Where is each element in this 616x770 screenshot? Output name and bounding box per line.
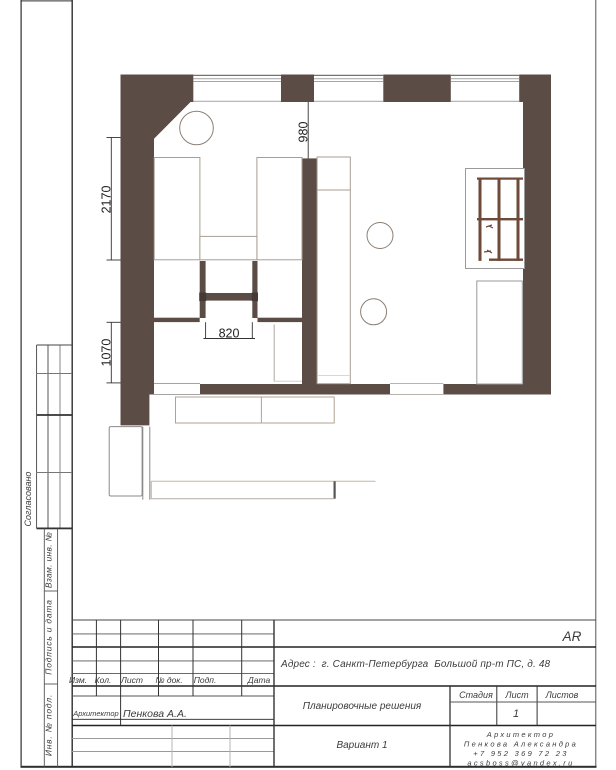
svg-text:Архитектор: Архитектор <box>486 730 555 739</box>
svg-text:Лист: Лист <box>504 690 529 700</box>
svg-text:Дата: Дата <box>247 675 271 685</box>
svg-text:Планировочные решения: Планировочные решения <box>303 701 422 712</box>
svg-text:Подп.: Подп. <box>194 675 217 685</box>
svg-text:Взам. инв. №: Взам. инв. № <box>44 532 54 588</box>
svg-text:Пенкова А.А.: Пенкова А.А. <box>123 708 187 720</box>
svg-text:Подпись и дата: Подпись и дата <box>44 599 54 675</box>
svg-text:acsboss@yandex.ru: acsboss@yandex.ru <box>467 758 574 767</box>
svg-text:Пенкова Александра: Пенкова Александра <box>464 740 578 749</box>
svg-text:Архитектор: Архитектор <box>72 709 118 718</box>
svg-text:Кол.: Кол. <box>95 675 112 685</box>
svg-text:+7 952 369 72 23: +7 952 369 72 23 <box>473 749 568 758</box>
svg-text:Листов: Листов <box>545 690 579 700</box>
svg-text:Адрес : г. Санкт-Петербурга: Адрес : г. Санкт-Петербурга Большой пр-т… <box>280 658 551 670</box>
svg-text:1070: 1070 <box>99 339 113 367</box>
svg-text:Лист: Лист <box>120 675 143 685</box>
svg-text:№ док.: № док. <box>155 675 182 685</box>
svg-text:2170: 2170 <box>99 186 113 214</box>
svg-text:AR: AR <box>562 629 582 644</box>
svg-text:Изм.: Изм. <box>69 675 87 685</box>
svg-text:820: 820 <box>219 326 240 340</box>
svg-text:980: 980 <box>296 122 310 143</box>
svg-text:Вариант 1: Вариант 1 <box>336 740 387 751</box>
svg-text:Инв. № подл.: Инв. № подл. <box>44 694 54 756</box>
svg-text:1: 1 <box>513 708 519 720</box>
svg-text:Стадия: Стадия <box>459 690 493 700</box>
svg-text:Согласовано: Согласовано <box>23 472 33 527</box>
